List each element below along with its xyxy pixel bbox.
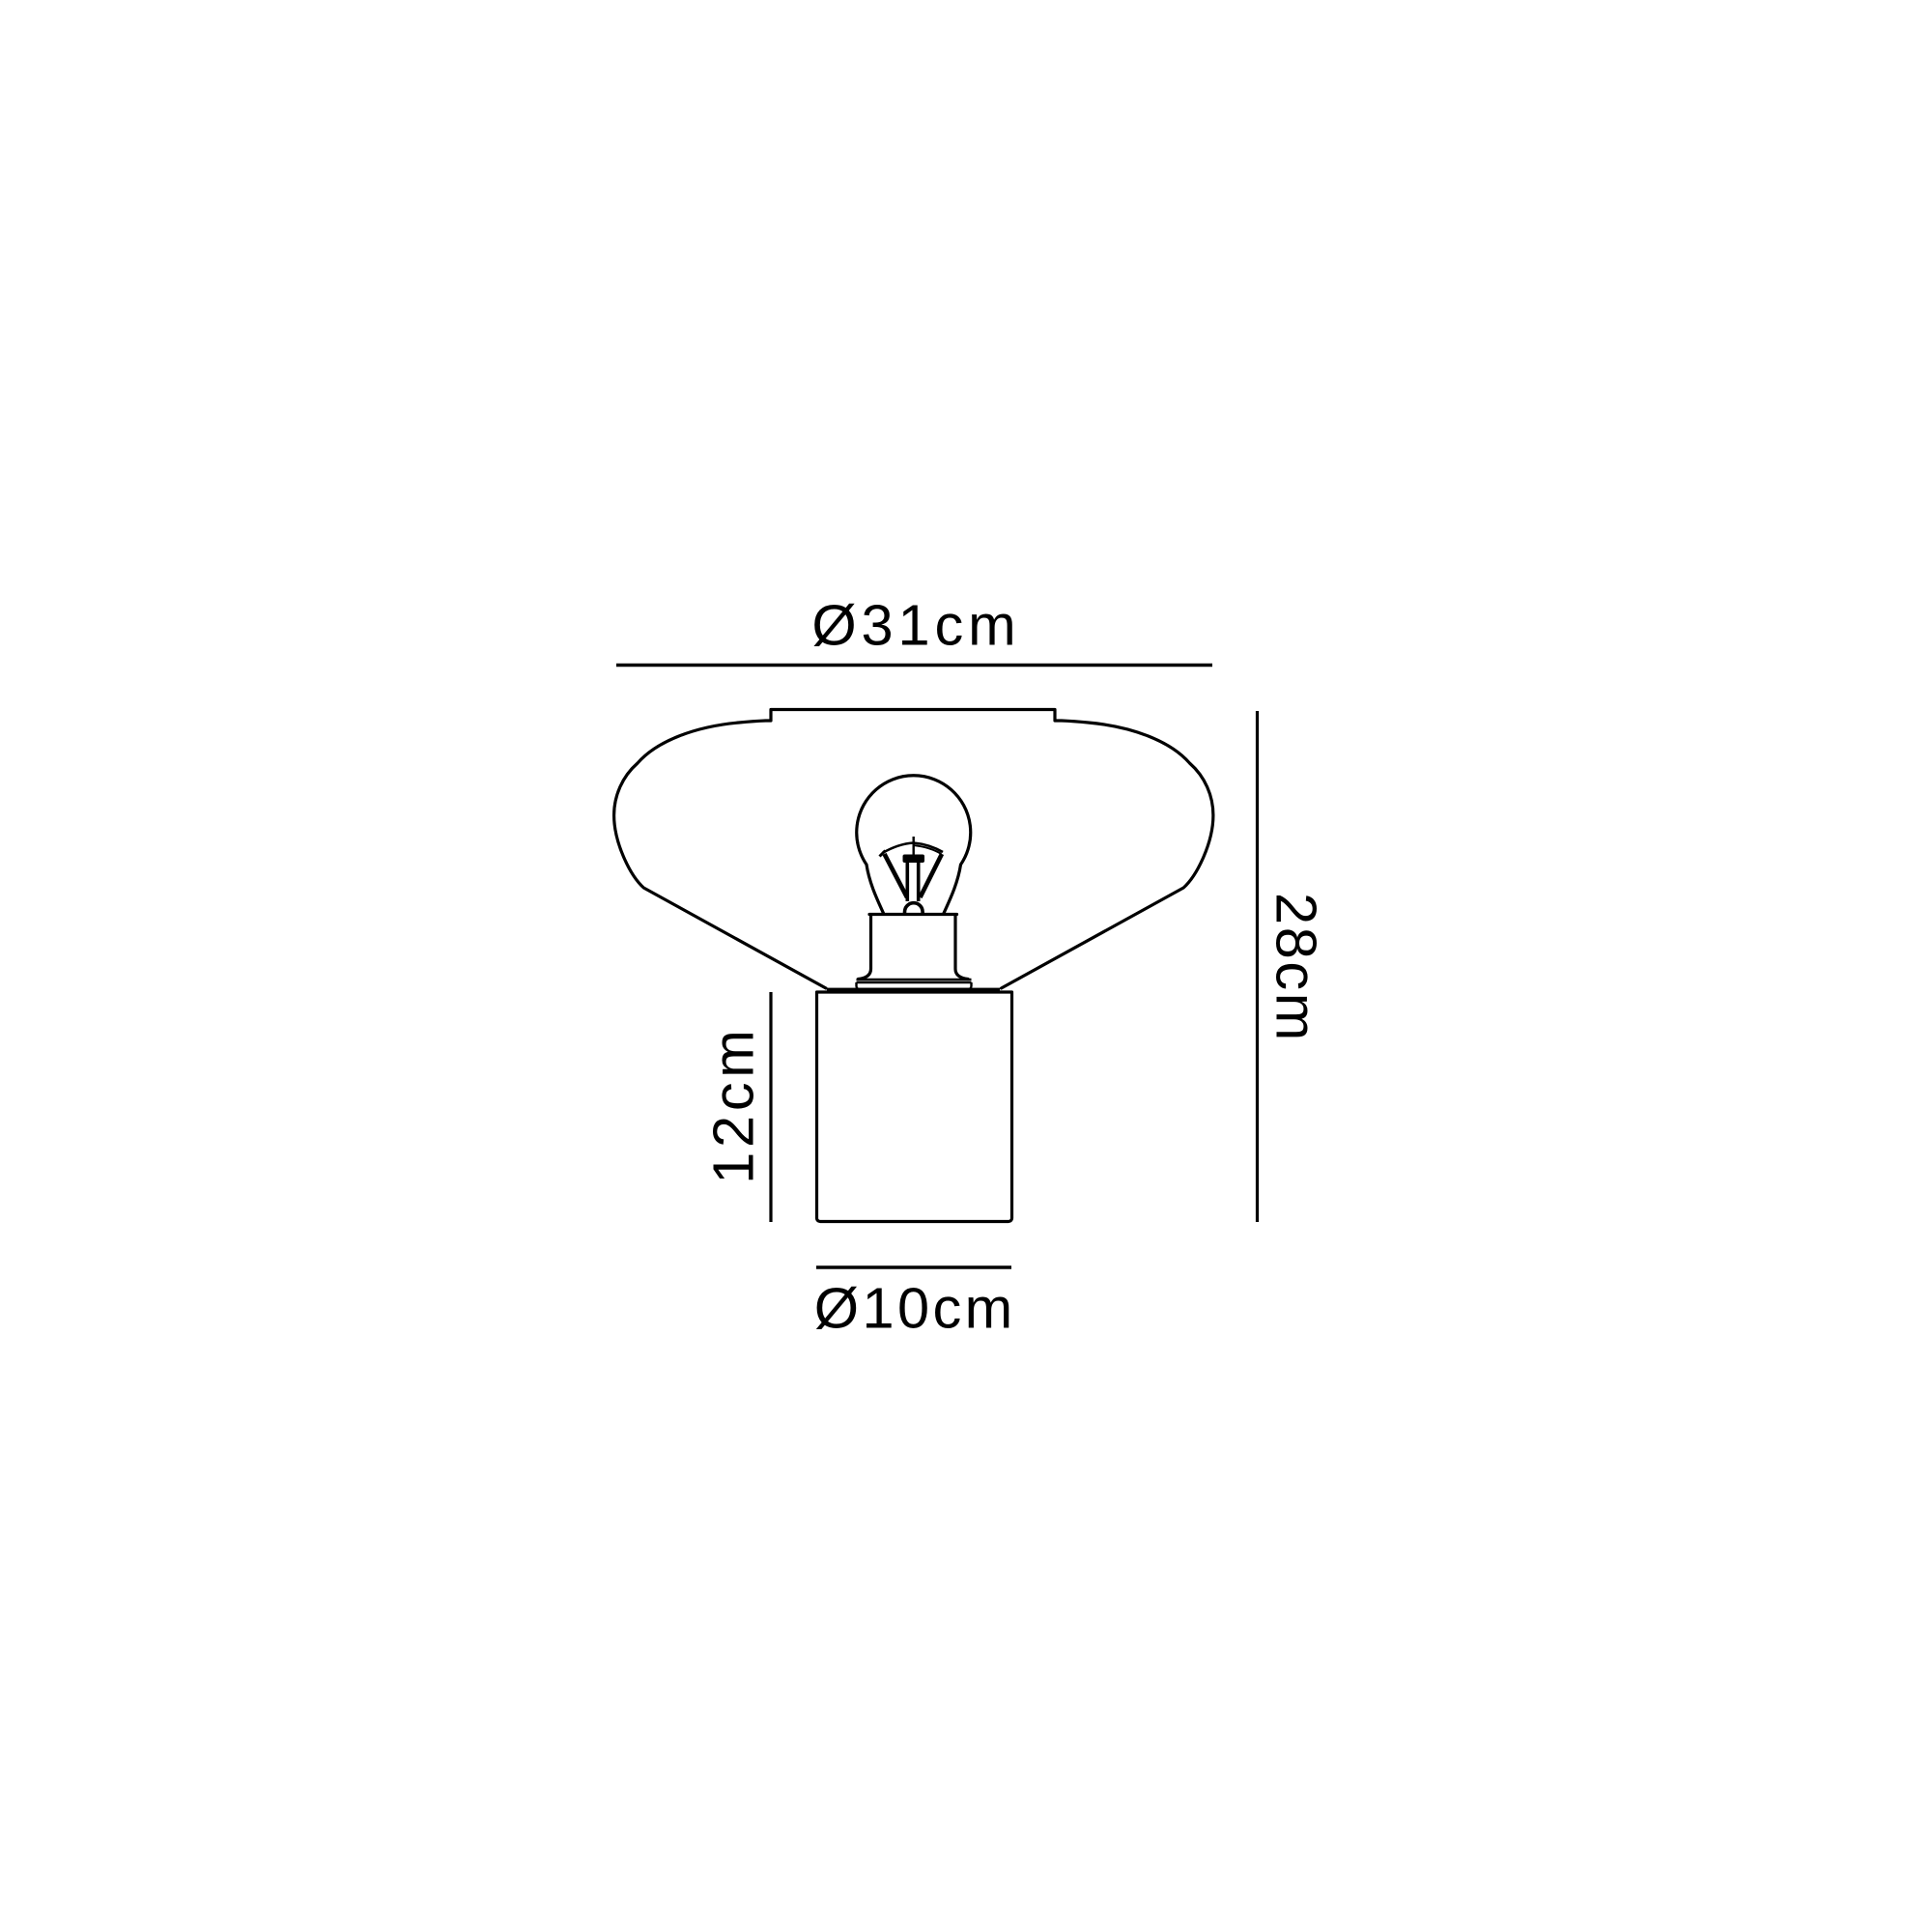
svg-text:28cm: 28cm — [1264, 893, 1329, 1043]
svg-text:Ø31cm: Ø31cm — [811, 593, 1020, 658]
svg-text:Ø10cm: Ø10cm — [814, 1276, 1016, 1341]
svg-text:12cm: 12cm — [701, 1025, 766, 1183]
